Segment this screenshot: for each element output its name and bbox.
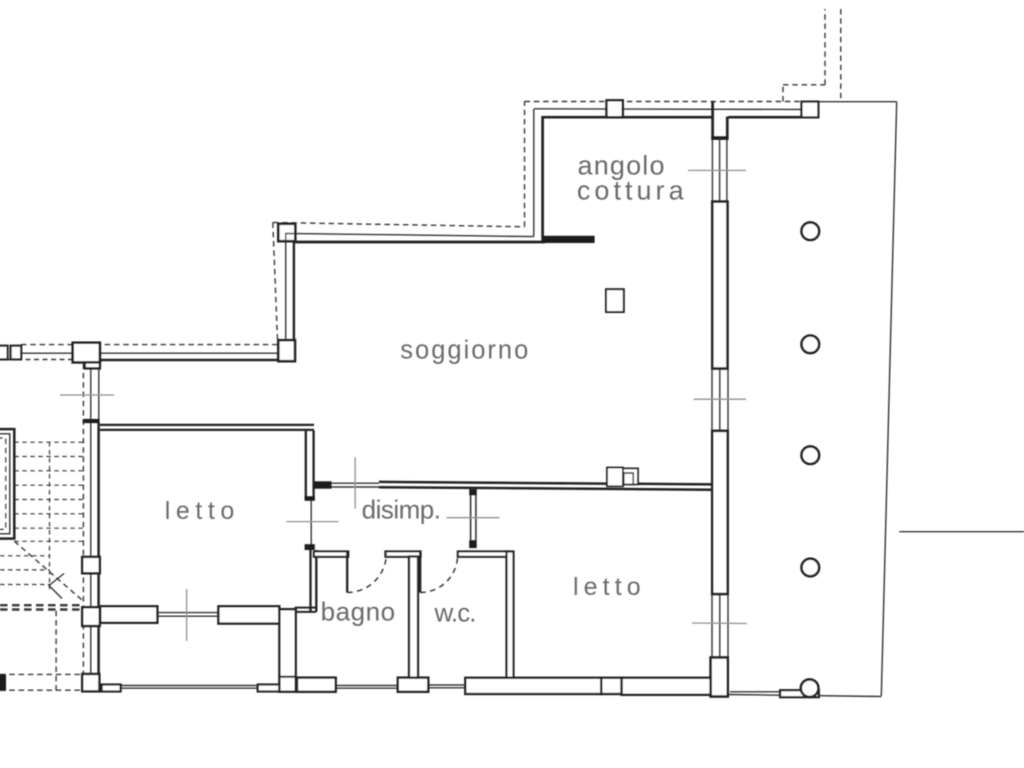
svg-text:w.c.: w.c. bbox=[434, 598, 477, 628]
svg-text:bagno: bagno bbox=[321, 597, 396, 627]
svg-text:letto: letto bbox=[573, 573, 641, 601]
svg-text:letto: letto bbox=[165, 497, 235, 525]
svg-text:disimp.: disimp. bbox=[362, 495, 441, 525]
svg-text:soggiorno: soggiorno bbox=[400, 337, 528, 365]
